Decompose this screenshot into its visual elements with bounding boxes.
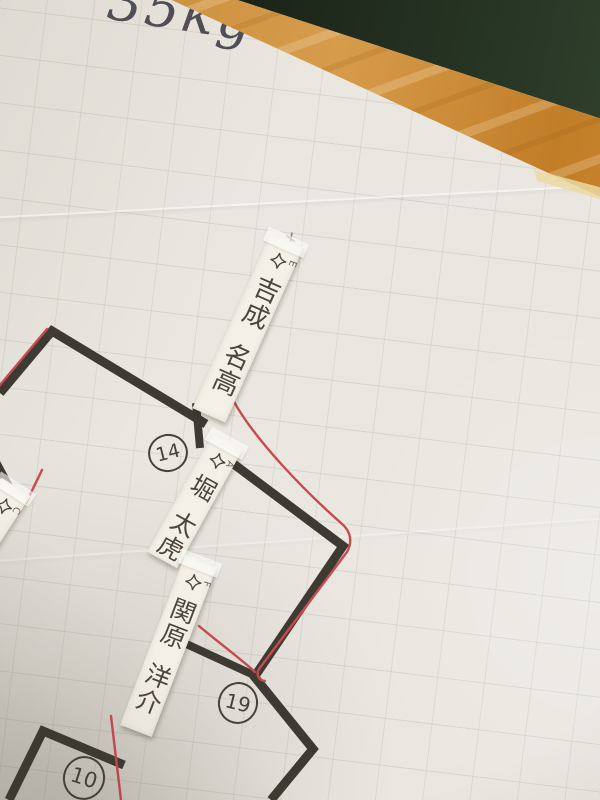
- bracket-photo: 35kg 14 19 10 E 吉成 名: [0, 0, 600, 800]
- match-number-label: 14: [154, 439, 183, 466]
- seed-star-icon: [267, 250, 289, 272]
- match-number-label: 10: [68, 762, 101, 793]
- seed-letter: E: [285, 259, 297, 269]
- player-surname: 堀: [185, 470, 220, 506]
- match-number-label: 19: [223, 688, 254, 717]
